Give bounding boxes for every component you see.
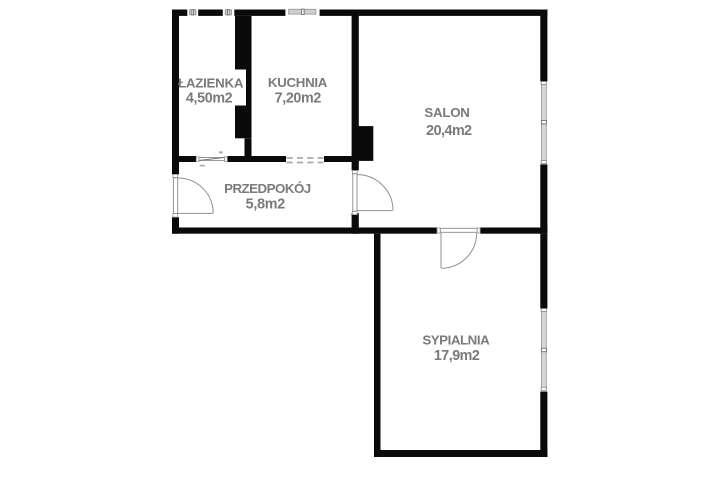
- svg-text:17,9m2: 17,9m2: [434, 348, 480, 364]
- svg-text:PRZEDPOKÓJ: PRZEDPOKÓJ: [224, 181, 311, 196]
- svg-text:ŁAZIENKA: ŁAZIENKA: [178, 76, 244, 91]
- svg-text:20,4m2: 20,4m2: [426, 123, 472, 139]
- svg-text:7,20m2: 7,20m2: [275, 91, 322, 107]
- svg-text:SALON: SALON: [424, 105, 469, 120]
- svg-text:SYPIALNIA: SYPIALNIA: [422, 333, 490, 348]
- svg-text:5,8m2: 5,8m2: [246, 196, 286, 212]
- svg-text:KUCHNIA: KUCHNIA: [268, 75, 328, 90]
- svg-text:4,50m2: 4,50m2: [186, 91, 233, 107]
